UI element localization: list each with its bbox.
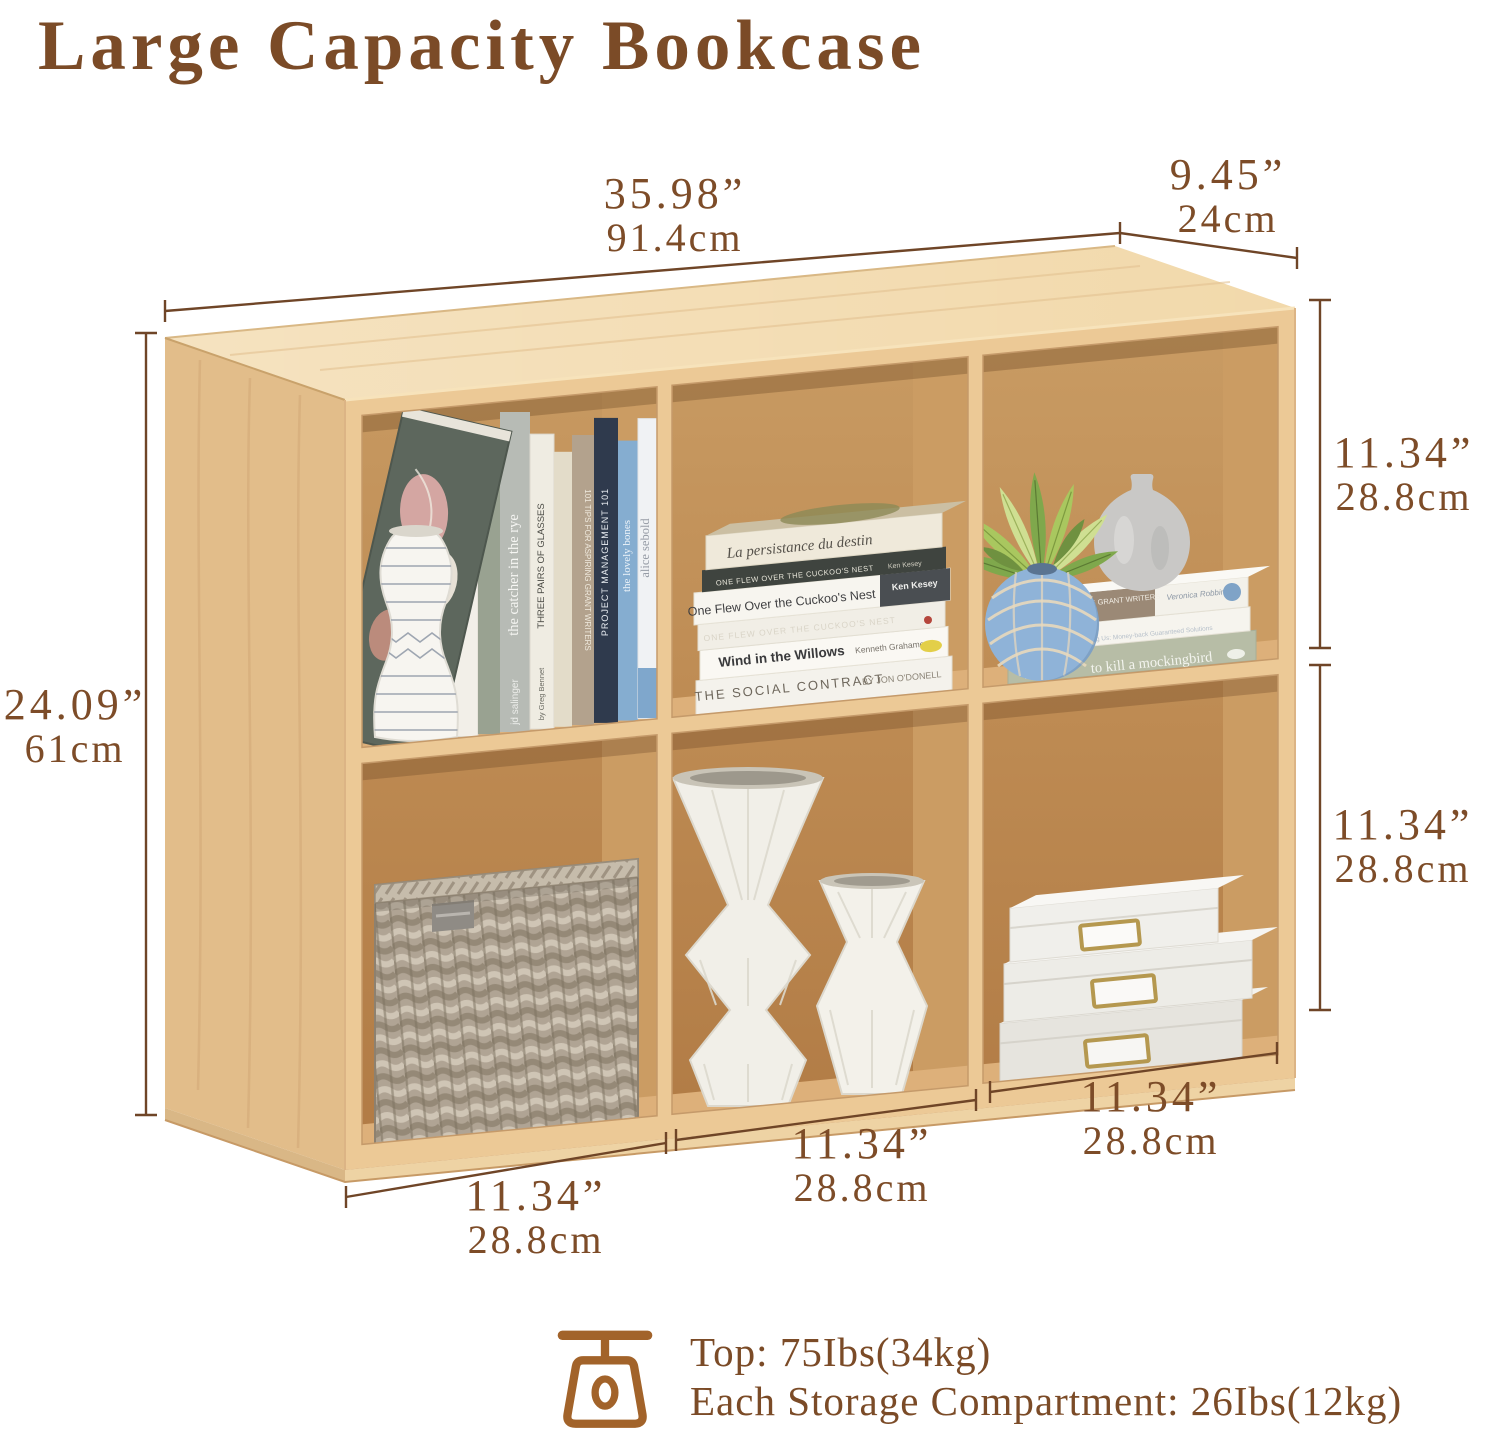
dimension-inches: 11.34”: [1334, 429, 1475, 476]
dimension-inches: 11.34”: [1081, 1073, 1222, 1120]
dimension-line-right-top: [1309, 300, 1331, 648]
book-spine-title: the catcher in the rye: [506, 514, 522, 636]
scale-icon: [552, 1326, 658, 1430]
dimension-inches: 11.34”: [1333, 801, 1474, 848]
capacity-compartment-line: Each Storage Compartment: 26Ibs(12kg): [690, 1377, 1402, 1426]
dimension-inches: 11.34”: [792, 1120, 933, 1167]
dimension-inches: 24.09”: [4, 681, 147, 728]
short-fluted-vase: [817, 873, 927, 1094]
dimension-cm: 28.8cm: [466, 1219, 607, 1262]
dimension-cm: 28.8cm: [1333, 848, 1474, 891]
dimension-label-bottom-right-compartment: 11.34” 28.8cm: [1081, 1073, 1222, 1163]
book-spine-author: by Greg Bennet: [537, 667, 546, 720]
dimension-label-bottom-middle-compartment: 11.34” 28.8cm: [792, 1120, 933, 1210]
dimension-label-height: 24.09” 61cm: [4, 681, 147, 771]
dimension-label-depth: 9.45” 24cm: [1170, 151, 1287, 241]
wicker-basket: [375, 859, 638, 1144]
dimension-cm: 61cm: [4, 728, 147, 771]
dimension-cm: 28.8cm: [792, 1167, 933, 1210]
dimension-cm: 28.8cm: [1081, 1120, 1222, 1163]
capacity-text: Top: 75Ibs(34kg) Each Storage Compartmen…: [690, 1326, 1402, 1426]
dimension-cm: 28.8cm: [1334, 476, 1475, 519]
book-spine-title: 101 TIPS FOR ASPIRING GRANT WRITERS: [583, 489, 592, 651]
dimension-label-right-top-compartment: 11.34” 28.8cm: [1334, 429, 1475, 519]
dimension-label-right-bottom-compartment: 11.34” 28.8cm: [1333, 801, 1474, 891]
dimension-inches: 35.98”: [604, 170, 747, 217]
dimension-label-bottom-left-compartment: 11.34” 28.8cm: [466, 1172, 607, 1262]
compartment-top-middle: THE SOCIAL CONTRACT BY JON O'DONELL Wind…: [687, 499, 966, 715]
book-stack: THE SOCIAL CONTRACT BY JON O'DONELL Wind…: [687, 499, 966, 715]
book-spine-title: alice sebold: [638, 518, 652, 578]
dimension-inches: 11.34”: [466, 1172, 607, 1219]
dimension-cm: 24cm: [1170, 198, 1287, 241]
dimension-line-right-bottom: [1309, 665, 1331, 1010]
dimension-inches: 9.45”: [1170, 151, 1287, 198]
book-spine-title: PROJECT MANAGEMENT 101: [600, 488, 610, 636]
capacity-info: Top: 75Ibs(34kg) Each Storage Compartmen…: [552, 1326, 1402, 1430]
dimension-label-top-width: 35.98” 91.4cm: [604, 170, 747, 260]
book-spine-title: THREE PAIRS OF GLASSES: [536, 503, 547, 628]
compartment-bottom-left: [375, 859, 638, 1144]
bookcase-side-panel: [165, 338, 345, 1170]
book-spine-author: jd salinger: [510, 679, 521, 726]
book-spine-title: the lovely bones: [621, 520, 633, 592]
product-dimension-diagram: Large Capacity Bookcase: [0, 0, 1500, 1432]
dimension-cm: 91.4cm: [604, 217, 747, 260]
bookcase: La persistance du destin KAP the catcher…: [165, 246, 1295, 1182]
capacity-top-line: Top: 75Ibs(34kg): [690, 1328, 1402, 1377]
